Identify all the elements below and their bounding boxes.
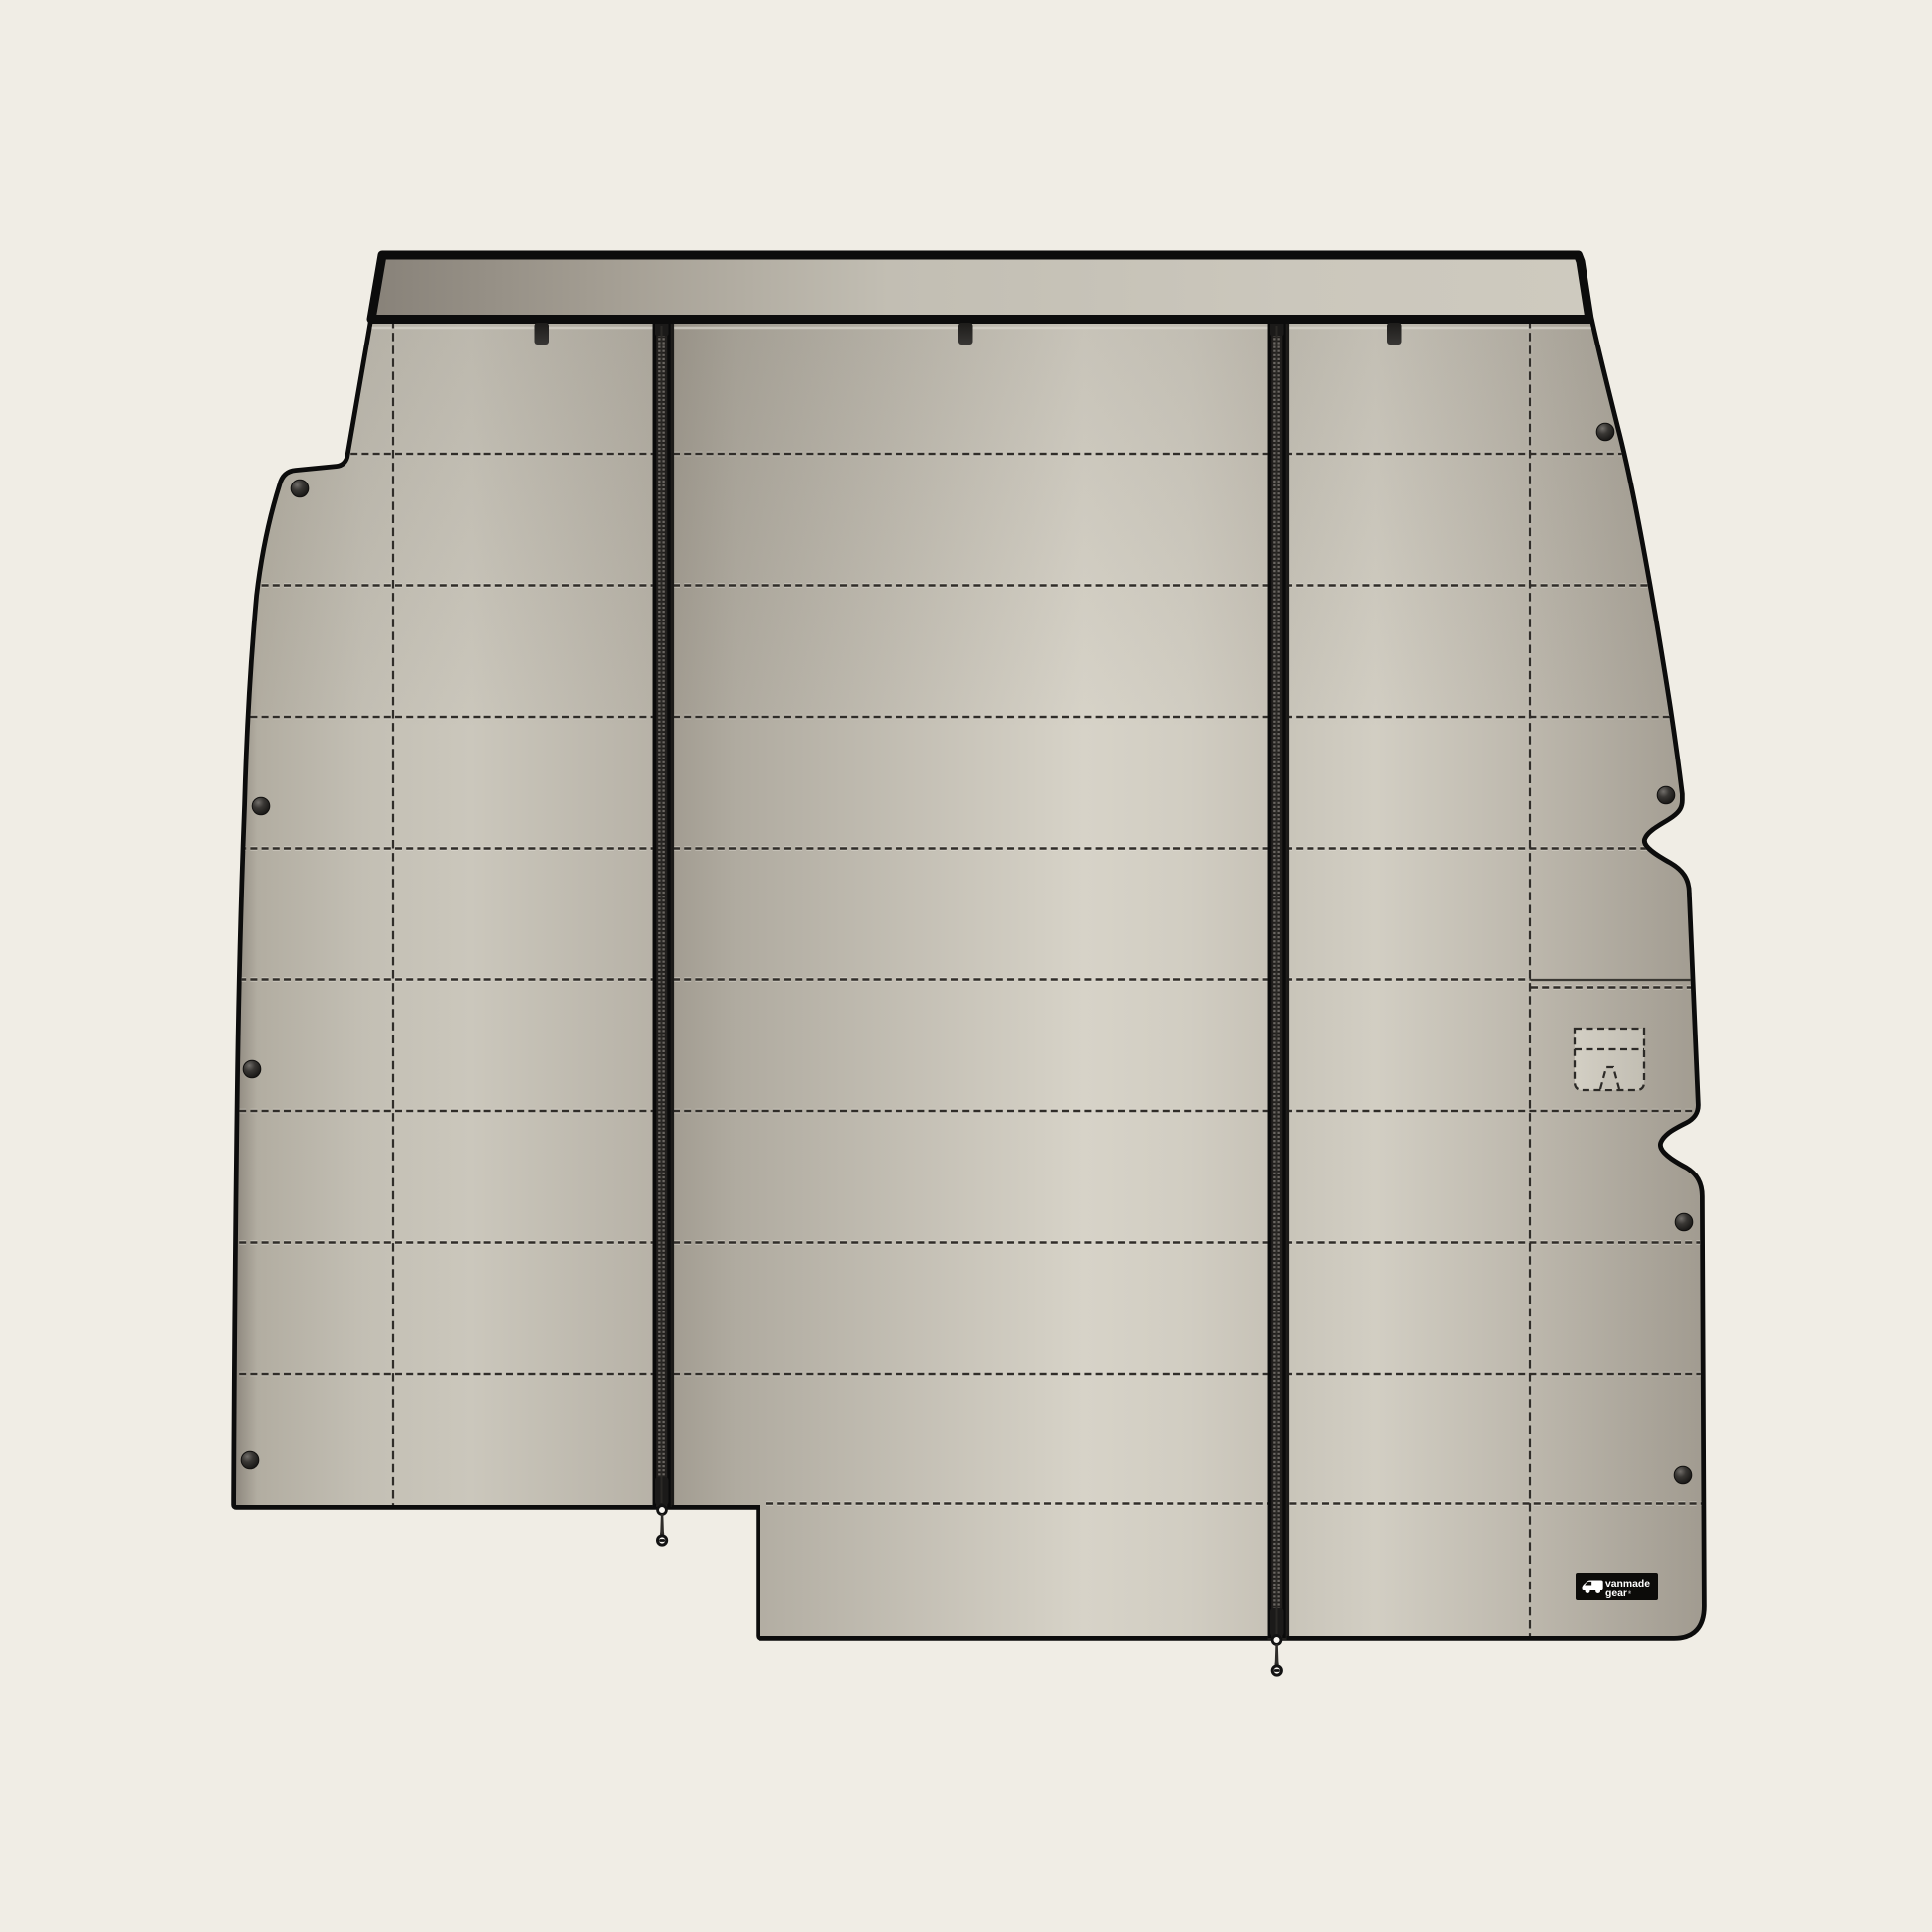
svg-text:gear: gear (1605, 1588, 1627, 1599)
